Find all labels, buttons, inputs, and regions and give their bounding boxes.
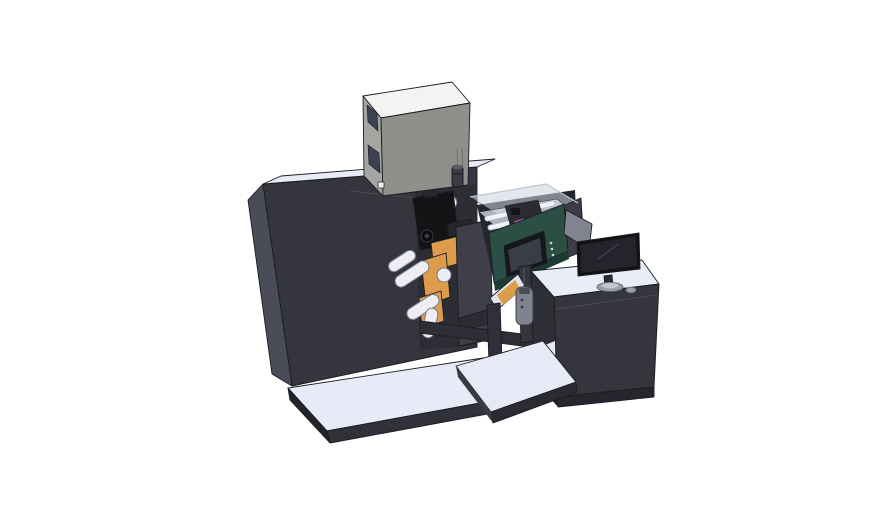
- pendant-cap: [519, 288, 530, 294]
- hmi-button: [552, 254, 555, 257]
- electronics-box: [363, 82, 470, 196]
- internal-block: [511, 208, 520, 215]
- cad-render-viewport: [0, 0, 888, 522]
- mouse: [626, 287, 636, 293]
- signal-post-cap: [452, 165, 463, 170]
- box-foot-pad: [378, 182, 384, 188]
- roller-end-disc: [437, 268, 451, 282]
- adjust-knob-center: [425, 234, 430, 239]
- pendant-button: [521, 306, 524, 309]
- machine-scene: [0, 0, 888, 522]
- hmi-button: [550, 242, 553, 245]
- pendant-button: [521, 299, 524, 302]
- hmi-button: [551, 248, 554, 251]
- monitor-stand-base-top: [602, 283, 619, 289]
